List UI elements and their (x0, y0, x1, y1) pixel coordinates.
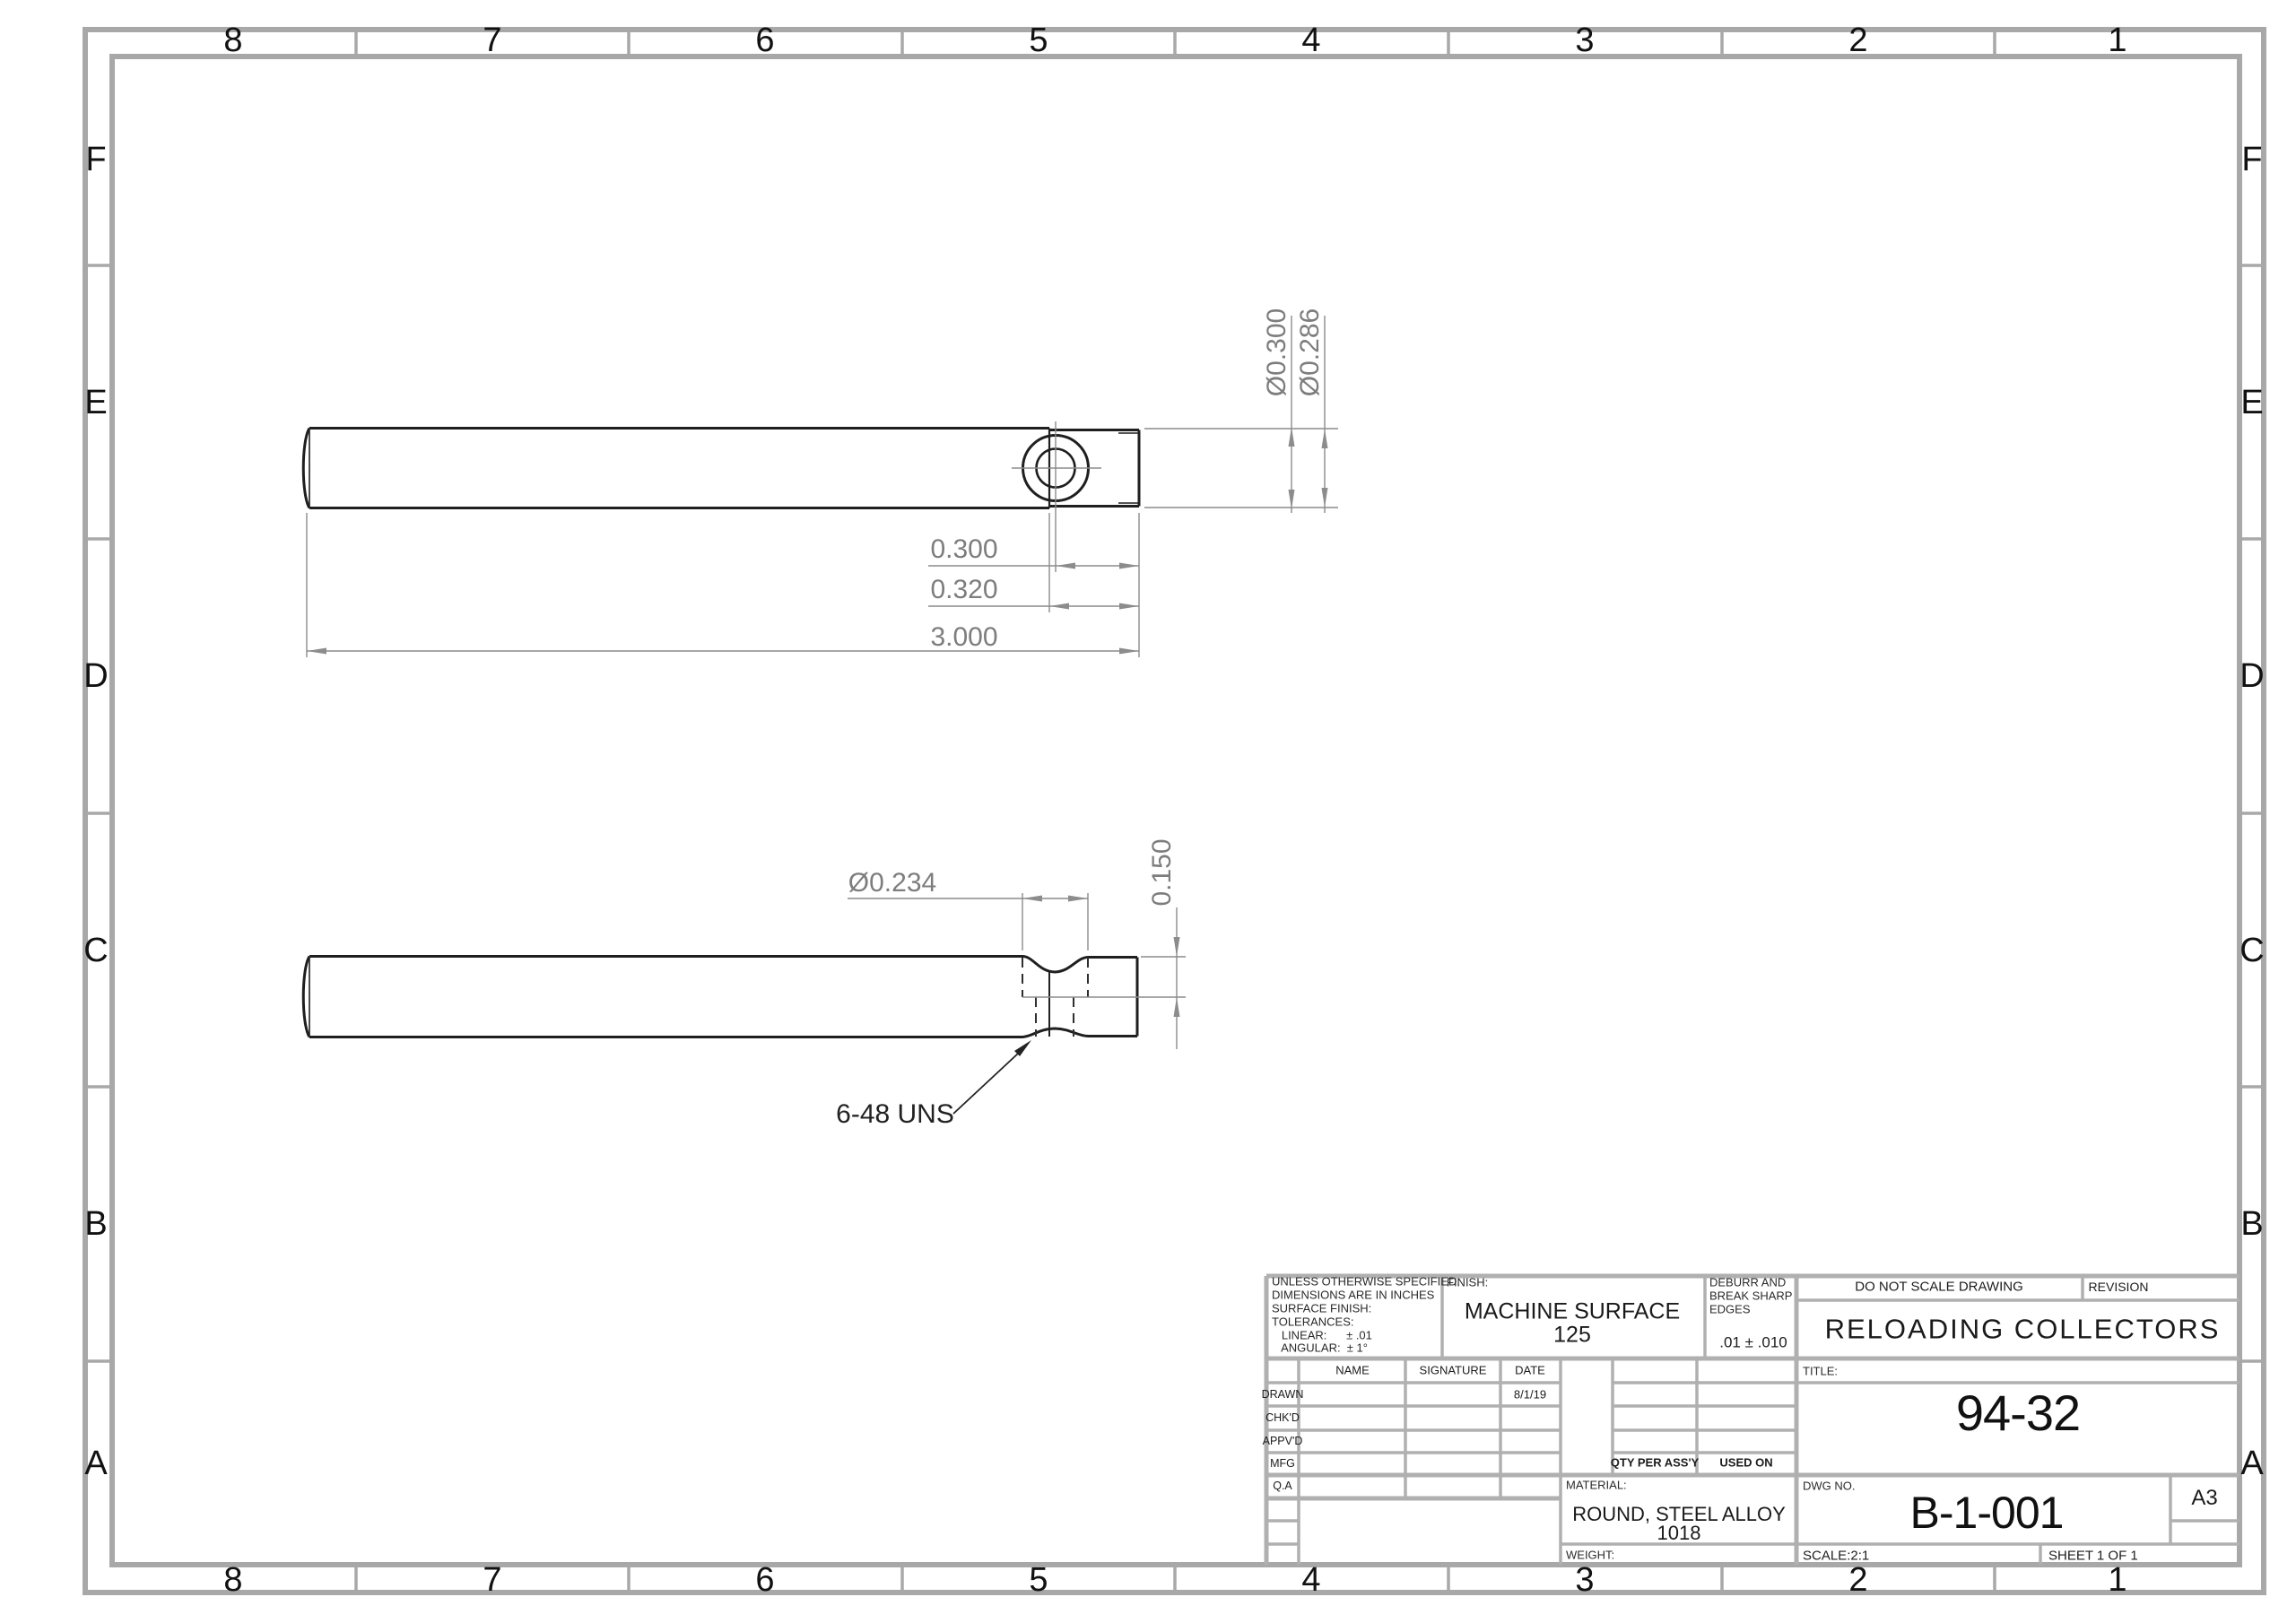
deburr-value: .01 ± .010 (1719, 1335, 1787, 1350)
zone-label: 6 (755, 1563, 774, 1597)
deburr-label: BREAK SHARP (1709, 1290, 1792, 1302)
zone-label: E (84, 386, 107, 420)
zone-label: 4 (1301, 1563, 1320, 1597)
zone-label: D (83, 659, 108, 693)
dim-blank-diameter: Ø0.286 (1297, 308, 1324, 396)
zone-label: B (2240, 1207, 2263, 1241)
finish-value: 125 (1553, 1324, 1591, 1347)
zone-label: B (84, 1207, 107, 1241)
zone-label: 6 (755, 23, 774, 57)
deburr-label: EDGES (1709, 1304, 1751, 1315)
zone-label: 1 (2108, 23, 2126, 57)
thread-leader (953, 1040, 1031, 1114)
row-label-drawn: DRAWN (1262, 1389, 1304, 1401)
tolerance-note: TOLERANCES: (1272, 1316, 1354, 1328)
company-name: RELOADING COLLECTORS (1825, 1315, 2221, 1343)
revision-label: REVISION (2089, 1280, 2149, 1293)
zone-label: E (2240, 386, 2263, 420)
title-label: TITLE: (1803, 1366, 1838, 1377)
drawing-linework (0, 0, 2296, 1623)
scale-label: SCALE:2:1 (1803, 1549, 1869, 1563)
zone-label: 8 (223, 23, 242, 57)
tolerance-note: DIMENSIONS ARE IN INCHES (1272, 1289, 1434, 1301)
deburr-label: DEBURR AND (1709, 1277, 1786, 1289)
dim-major-diameter: Ø0.300 (1264, 308, 1291, 396)
drawing-sheet: 8 7 6 5 4 3 2 1 8 7 6 5 4 3 2 1 F E D C … (0, 0, 2296, 1623)
upper-view-centerlines (1012, 421, 1101, 572)
zone-label: 4 (1301, 23, 1320, 57)
zone-label: 2 (1848, 23, 1867, 57)
dim-step-length: 0.320 (930, 577, 997, 603)
used-on-label: USED ON (1719, 1457, 1772, 1469)
row-label-mfg: MFG (1270, 1458, 1295, 1470)
zone-label: 7 (483, 23, 501, 57)
zone-label: 8 (223, 1563, 242, 1597)
upper-view-dimension-lines (307, 316, 1338, 657)
qty-per-assy-label: QTY PER ASS'Y (1611, 1457, 1699, 1469)
paper-size: A3 (2191, 1488, 2217, 1509)
tolerance-note: UNLESS OTHERWISE SPECIFIED: (1272, 1276, 1460, 1288)
zone-label: 3 (1575, 23, 1594, 57)
dwg-no-label: DWG NO. (1803, 1480, 1856, 1492)
zone-label: C (83, 933, 108, 968)
zone-label: A (2240, 1446, 2263, 1480)
part-title: 94-32 (1956, 1388, 2080, 1438)
zone-label: A (84, 1446, 107, 1480)
dwg-no-value: B-1-001 (1910, 1490, 2064, 1535)
zone-label: 7 (483, 1563, 501, 1597)
zone-label: D (2239, 659, 2264, 693)
zone-label: 5 (1029, 1563, 1048, 1597)
finish-label: FINISH: (1447, 1277, 1488, 1289)
zone-label: 1 (2108, 1563, 2126, 1597)
row-label-qa: Q.A (1273, 1480, 1292, 1492)
tolerance-note: SURFACE FINISH: (1272, 1303, 1371, 1315)
weight-label: WEIGHT: (1566, 1549, 1614, 1561)
zone-label: 3 (1575, 1563, 1594, 1597)
do-not-scale-note: DO NOT SCALE DRAWING (1855, 1280, 2023, 1294)
column-header-signature: SIGNATURE (1420, 1365, 1487, 1376)
dim-hole-offset: 0.300 (930, 536, 997, 563)
dim-overall-length: 3.000 (930, 624, 997, 651)
sheet-label: SHEET 1 OF 1 (2048, 1549, 2138, 1563)
zone-label: 2 (1848, 1563, 1867, 1597)
row-label-chkd: CHK'D (1265, 1412, 1300, 1424)
zone-label: F (85, 143, 106, 177)
material-label: MATERIAL: (1566, 1480, 1627, 1491)
tolerance-note: LINEAR: ± .01 (1272, 1330, 1372, 1341)
lower-view (303, 957, 1137, 1037)
lower-view-dimension-lines (848, 893, 1186, 1049)
thread-callout: 6-48 UNS (836, 1101, 954, 1128)
tolerance-note: ANGULAR: ± 1° (1272, 1342, 1368, 1354)
row-label-appvd: APPV'D (1263, 1436, 1303, 1447)
column-header-date: DATE (1515, 1365, 1545, 1376)
dim-depth: 0.150 (1149, 838, 1176, 906)
column-header-name: NAME (1335, 1365, 1370, 1376)
zone-label: F (2241, 143, 2262, 177)
upper-view-arrows (307, 427, 1328, 655)
zone-label: C (2239, 933, 2264, 968)
zone-label: 5 (1029, 23, 1048, 57)
drawn-date: 8/1/19 (1514, 1389, 1546, 1401)
finish-value: MACHINE SURFACE (1465, 1301, 1680, 1324)
dim-relief-diameter: Ø0.234 (848, 870, 936, 897)
material-value: 1018 (1657, 1523, 1701, 1543)
